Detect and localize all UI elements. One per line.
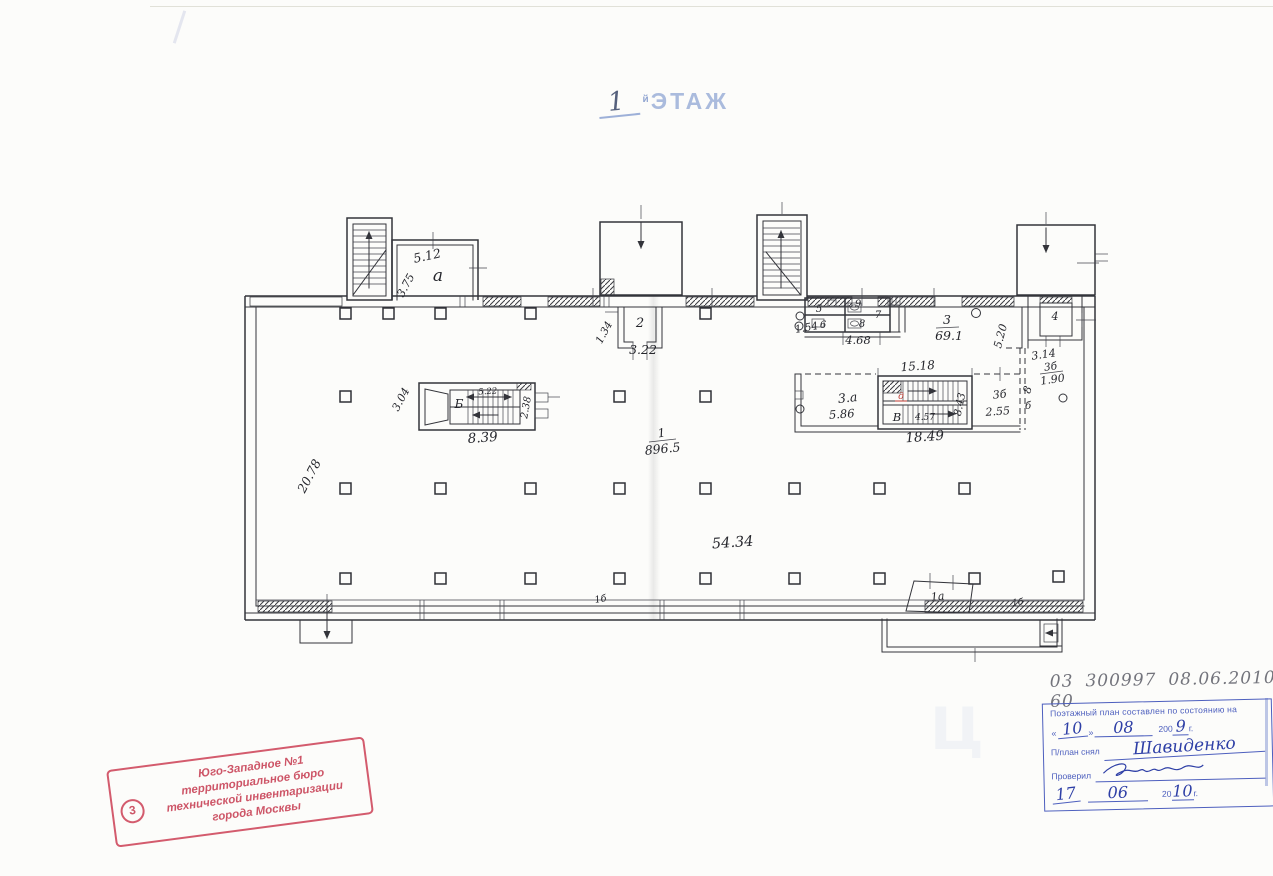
dim-label: 2.55 bbox=[984, 404, 1010, 419]
dim-label: 4.57 bbox=[914, 413, 935, 423]
dim-label: 1.34 bbox=[594, 319, 616, 345]
room-label: 6 bbox=[820, 320, 827, 331]
dim-label: 54.34 bbox=[711, 534, 754, 553]
room-label: 3б bbox=[992, 387, 1007, 401]
survey-year-printed: 200 bbox=[1158, 725, 1173, 737]
signature bbox=[1099, 755, 1210, 781]
dim-label: б bbox=[1025, 401, 1032, 412]
room-area: 69.1 bbox=[935, 328, 963, 343]
room-label: 1б bbox=[1012, 596, 1025, 608]
stair-letter: Б bbox=[454, 397, 464, 411]
right-projection bbox=[1017, 212, 1108, 295]
room-4 bbox=[1028, 296, 1096, 347]
stairwell-a bbox=[347, 218, 392, 300]
survey-year-suffix: г. bbox=[1189, 724, 1194, 736]
stair-letter: В bbox=[892, 410, 901, 424]
dim-label: 8 bbox=[1020, 384, 1035, 395]
dim-label: 5.20 bbox=[991, 323, 1010, 350]
column-grid bbox=[340, 308, 1064, 584]
checked-year-printed: 20 bbox=[1162, 790, 1172, 802]
room-label: 1а bbox=[930, 589, 945, 603]
room-label: а bbox=[433, 266, 443, 286]
mid-projection bbox=[600, 205, 682, 295]
dim-label: 3.75 bbox=[394, 271, 417, 299]
stairwell-2 bbox=[757, 202, 807, 300]
bti-stamp-number: 3 bbox=[119, 798, 146, 825]
room-area: 1.90 bbox=[1039, 371, 1065, 387]
room-label: 5 bbox=[816, 304, 822, 315]
signature-line bbox=[1095, 758, 1266, 783]
outer-walls bbox=[245, 296, 1095, 620]
close-quote: » bbox=[1088, 728, 1093, 738]
room-label: 3.а bbox=[837, 389, 858, 406]
bottom-right-porch bbox=[882, 619, 1062, 662]
dim-label: 4.68 bbox=[844, 333, 871, 347]
checked-month: 06 bbox=[1088, 785, 1148, 803]
open-quote: « bbox=[1051, 729, 1056, 739]
dim-label: 18.49 bbox=[905, 428, 945, 447]
room-number: 1 bbox=[657, 426, 667, 441]
checked-year-hand: 10 bbox=[1171, 784, 1193, 801]
survey-year-hand: 9 bbox=[1173, 719, 1189, 736]
room-label: 2 bbox=[635, 316, 644, 331]
checked-by-label: Проверил bbox=[1051, 772, 1091, 784]
scanned-floorplan-page: Ц 1 й ЭТАЖ bbox=[0, 0, 1273, 876]
survey-month: 08 bbox=[1094, 720, 1152, 738]
survey-day: 10 bbox=[1057, 720, 1088, 740]
room-label: 7 bbox=[875, 310, 882, 321]
plan-by-label: П/план снял bbox=[1051, 747, 1100, 760]
room-label: 4 bbox=[1051, 310, 1059, 323]
survey-stamp: Поэтажный план составлен по состоянию на… bbox=[1042, 698, 1273, 812]
dim-label: 3.22 bbox=[629, 342, 657, 357]
room-label: 8 bbox=[859, 319, 865, 330]
room-area: 896.5 bbox=[644, 439, 681, 458]
red-annotation: д bbox=[898, 392, 904, 402]
checked-year-suffix: г. bbox=[1193, 789, 1198, 801]
dim-label: 3.04 bbox=[389, 385, 412, 413]
window-ticks bbox=[420, 296, 744, 620]
dim-label: 5.86 bbox=[828, 406, 855, 422]
checked-day: 17 bbox=[1051, 785, 1081, 805]
dim-label: 8.39 bbox=[467, 429, 499, 447]
dim-label: 15.18 bbox=[900, 358, 936, 374]
room-number: 3 bbox=[943, 312, 951, 327]
dim-label: 5.22 bbox=[478, 386, 498, 397]
room-label: 9 bbox=[855, 299, 862, 310]
dim-label: 20.78 bbox=[294, 457, 325, 497]
divider-wall-right bbox=[1022, 307, 1028, 348]
dim-label: 5.12 bbox=[412, 245, 442, 265]
survey-stamp-header: Поэтажный план составлен по состоянию на bbox=[1050, 705, 1264, 719]
room-label: 1б bbox=[594, 593, 608, 606]
